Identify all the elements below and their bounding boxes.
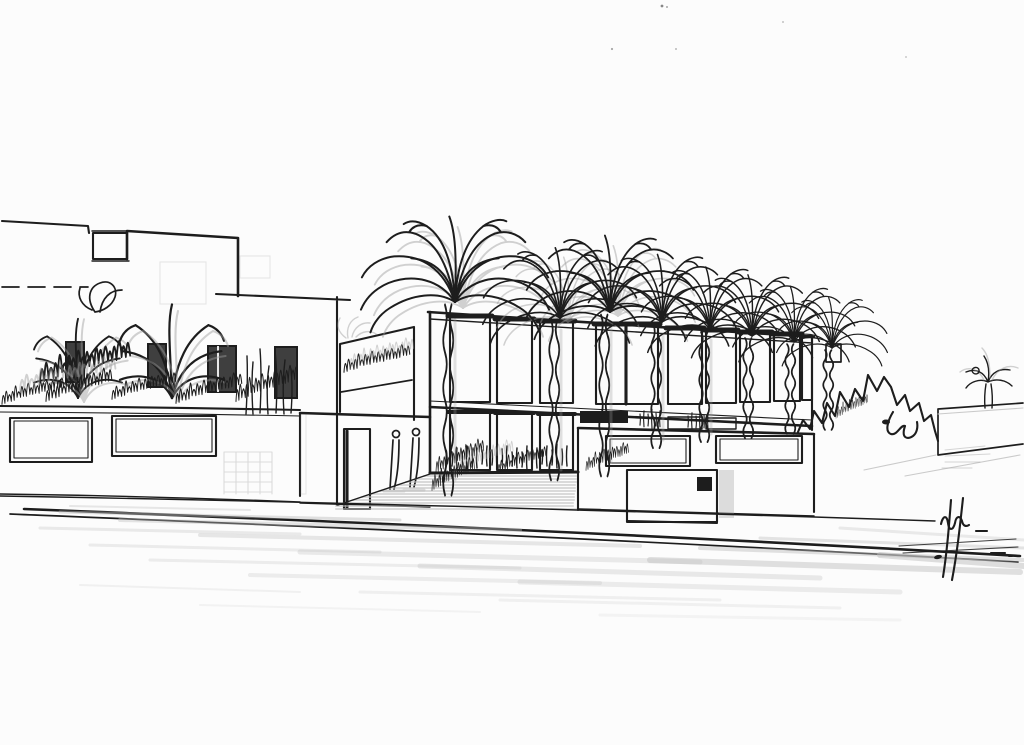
hedge-accent [887, 412, 917, 438]
figure-head [413, 429, 420, 436]
gate-shadow [719, 470, 734, 518]
palm-row [361, 217, 887, 496]
paper-specks [611, 5, 907, 58]
grid-window [495, 319, 534, 403]
right-garden [798, 348, 1023, 476]
grid-window [704, 330, 738, 403]
front-wall-right [578, 428, 814, 523]
small-palm [960, 348, 1018, 408]
left-garden-wall [0, 282, 306, 502]
crosshatch-panel [716, 436, 802, 463]
street [0, 496, 1024, 620]
sketch-page: Black-and-white ink and pencil architect… [0, 0, 1024, 745]
intercom-box [697, 477, 712, 491]
asphalt-shading [40, 506, 1024, 620]
dark-header-band [580, 411, 628, 423]
trunk-shading [455, 320, 711, 480]
pencil-palm-sketch [338, 317, 376, 338]
pencil-grid [224, 452, 272, 494]
sketch-canvas [0, 0, 1024, 745]
figure-head [393, 431, 400, 438]
